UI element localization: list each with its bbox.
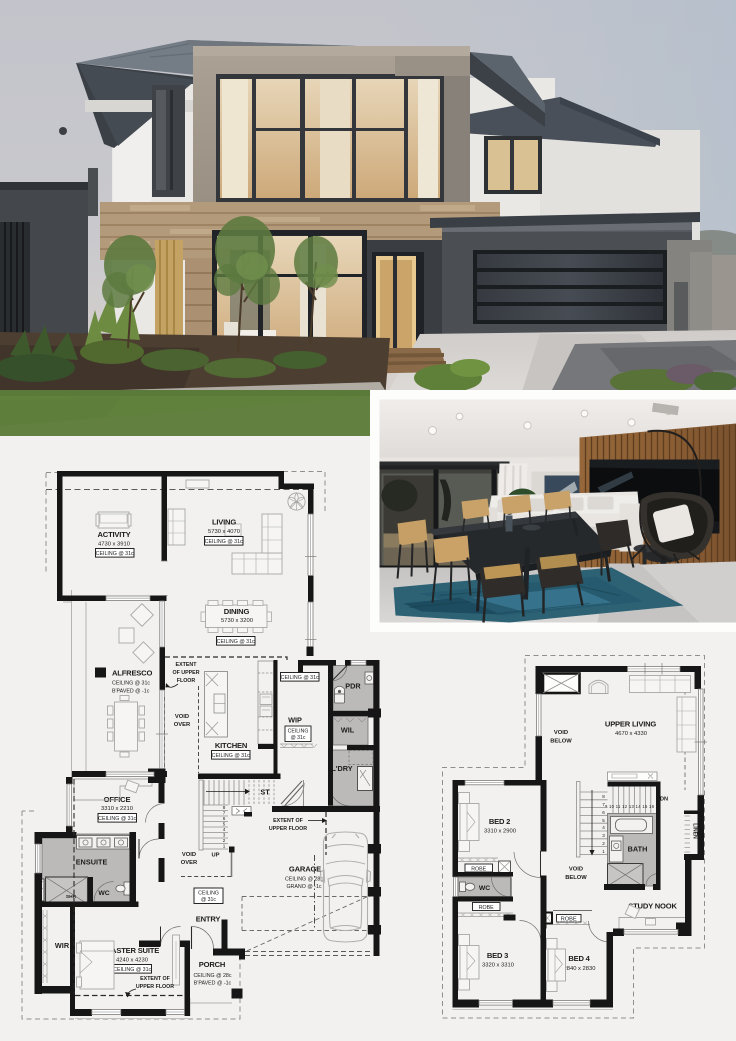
- svg-text:3: 3: [223, 833, 226, 838]
- svg-text:GARAGE: GARAGE: [289, 865, 321, 874]
- svg-text:PORCH: PORCH: [199, 960, 225, 969]
- svg-text:DINING: DINING: [224, 607, 250, 616]
- svg-text:6: 6: [602, 810, 605, 815]
- svg-text:OFFICE: OFFICE: [104, 795, 131, 804]
- svg-text:@ 31c: @ 31c: [201, 897, 216, 903]
- svg-text:1: 1: [223, 844, 226, 849]
- svg-text:VOID: VOID: [175, 714, 189, 720]
- svg-text:CEILING: CEILING: [198, 891, 219, 897]
- svg-text:PDR: PDR: [345, 682, 361, 691]
- svg-text:OVER: OVER: [174, 722, 191, 728]
- svg-text:2: 2: [602, 841, 605, 846]
- svg-text:LINEN: LINEN: [692, 823, 698, 839]
- svg-text:WIP: WIP: [288, 716, 302, 725]
- svg-text:CEILING @ 31c: CEILING @ 31c: [217, 639, 255, 645]
- svg-text:CEILING @ 31c: CEILING @ 31c: [205, 539, 243, 545]
- svg-text:5: 5: [223, 822, 226, 827]
- svg-text:ALFRESCO: ALFRESCO: [112, 669, 152, 678]
- svg-text:2: 2: [223, 838, 226, 843]
- svg-text:ENTRY: ENTRY: [196, 915, 221, 924]
- svg-text:ROBE: ROBE: [471, 867, 486, 873]
- svg-text:GRANO @ -1c: GRANO @ -1c: [286, 884, 321, 890]
- svg-text:L'DRY: L'DRY: [331, 764, 352, 773]
- svg-text:CEILING: CEILING: [288, 729, 309, 735]
- svg-text:WIR: WIR: [55, 941, 70, 950]
- svg-text:4240 x 4230: 4240 x 4230: [116, 958, 148, 964]
- svg-text:CEILING @ 31c: CEILING @ 31c: [113, 967, 151, 973]
- svg-text:8: 8: [223, 805, 226, 810]
- svg-text:ST: ST: [260, 788, 270, 797]
- svg-text:4730 x 3910: 4730 x 3910: [98, 542, 130, 548]
- svg-text:BELOW: BELOW: [565, 875, 587, 881]
- svg-text:5730 x 4070: 5730 x 4070: [208, 529, 240, 535]
- svg-text:CEILING @ 31c: CEILING @ 31c: [281, 675, 319, 681]
- svg-text:B'PAVED @ -1c: B'PAVED @ -1c: [112, 689, 150, 695]
- svg-text:ENSUITE: ENSUITE: [76, 858, 108, 867]
- svg-text:UPPER FLOOR: UPPER FLOOR: [136, 984, 174, 990]
- svg-text:KITCHEN: KITCHEN: [215, 741, 247, 750]
- svg-text:B'PAVED @ -1c: B'PAVED @ -1c: [194, 981, 232, 987]
- svg-text:OVER: OVER: [181, 860, 198, 866]
- svg-text:3310 x 2210: 3310 x 2210: [101, 806, 133, 812]
- svg-text:BELOW: BELOW: [550, 739, 572, 745]
- svg-text:FLOOR: FLOOR: [177, 678, 196, 684]
- svg-text:5730 x 3200: 5730 x 3200: [221, 618, 253, 624]
- svg-text:UP: UP: [211, 853, 219, 859]
- svg-text:1: 1: [602, 849, 605, 854]
- svg-text:WC: WC: [98, 890, 109, 897]
- svg-text:DN: DN: [660, 797, 668, 803]
- svg-text:LIVING: LIVING: [212, 518, 236, 527]
- svg-text:3320 x 3310: 3320 x 3310: [482, 963, 514, 969]
- svg-text:@ 31c: @ 31c: [290, 735, 305, 741]
- svg-text:EXTENT OF: EXTENT OF: [140, 976, 170, 982]
- svg-text:BED 3: BED 3: [487, 951, 508, 960]
- svg-text:9 10 11 12 13 14 15 16 17: 9 10 11 12 13 14 15 16 17: [605, 804, 661, 809]
- svg-text:VOID: VOID: [569, 867, 583, 873]
- svg-text:CEILING @ 28c: CEILING @ 28c: [193, 973, 231, 979]
- svg-text:ACTIVITY: ACTIVITY: [98, 530, 131, 539]
- svg-text:EXTENT OF: EXTENT OF: [273, 818, 303, 824]
- svg-text:CEILING @ 31c: CEILING @ 31c: [212, 753, 250, 759]
- svg-text:7: 7: [223, 811, 226, 816]
- svg-text:CEILING @ 28c: CEILING @ 28c: [285, 877, 323, 883]
- svg-text:4: 4: [223, 827, 226, 832]
- svg-text:BATH: BATH: [628, 845, 648, 854]
- svg-text:OF UPPER: OF UPPER: [172, 670, 199, 676]
- svg-text:UPPER FLOOR: UPPER FLOOR: [269, 826, 307, 832]
- svg-text:3: 3: [602, 833, 605, 838]
- svg-text:VOID: VOID: [554, 730, 568, 736]
- svg-text:3310 x 2900: 3310 x 2900: [484, 829, 516, 835]
- svg-text:6: 6: [223, 816, 226, 821]
- svg-text:4670 x 4330: 4670 x 4330: [615, 731, 647, 737]
- svg-text:SHR: SHR: [66, 894, 77, 900]
- svg-text:WC: WC: [479, 885, 490, 892]
- svg-text:4: 4: [602, 825, 605, 830]
- svg-text:EXTENT: EXTENT: [176, 662, 198, 668]
- svg-text:CEILING @ 31c: CEILING @ 31c: [96, 551, 134, 557]
- svg-text:2840 x 2830: 2840 x 2830: [564, 966, 596, 972]
- svg-text:WIL: WIL: [341, 726, 355, 735]
- svg-text:8: 8: [602, 794, 605, 799]
- svg-text:VOID: VOID: [182, 852, 196, 858]
- svg-text:CEILING @ 31c: CEILING @ 31c: [98, 816, 136, 822]
- svg-text:CEILING @ 31c: CEILING @ 31c: [112, 681, 150, 687]
- svg-text:5: 5: [602, 818, 605, 823]
- svg-text:UPPER LIVING: UPPER LIVING: [605, 720, 656, 729]
- svg-text:7: 7: [602, 802, 605, 807]
- svg-text:ROBE: ROBE: [479, 905, 494, 911]
- svg-text:BED 4: BED 4: [568, 954, 590, 963]
- svg-text:BED 2: BED 2: [489, 817, 510, 826]
